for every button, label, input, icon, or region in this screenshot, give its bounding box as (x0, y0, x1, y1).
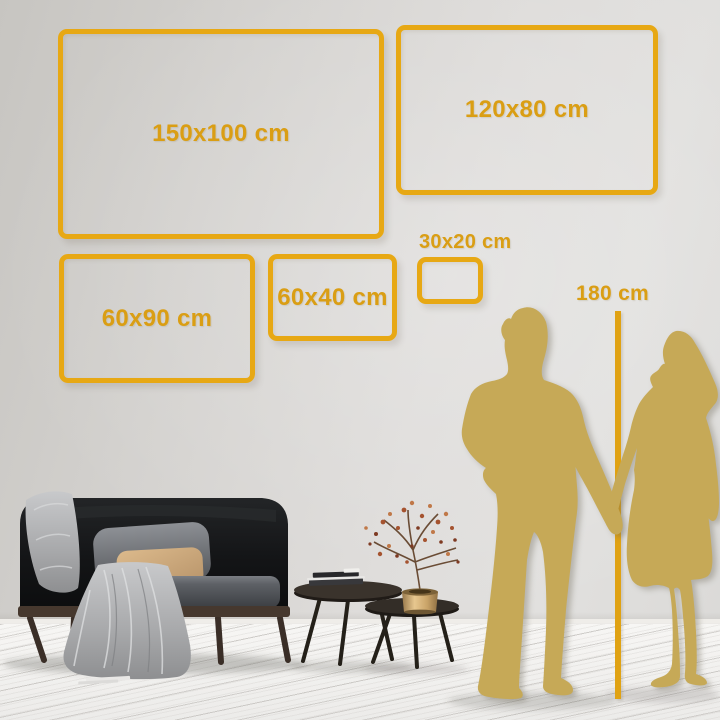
nesting-coffee-tables (294, 568, 459, 667)
size-frame-label-30x20: 30x20 cm (419, 231, 511, 254)
size-frame-label-60x90: 60x90 cm (102, 305, 213, 333)
size-frame-label-150x100: 150x100 cm (152, 120, 290, 148)
size-frame-120x80: 120x80 cm (396, 25, 658, 195)
size-frame-60x90: 60x90 cm (59, 254, 255, 383)
man-silhouette (462, 307, 623, 699)
sofa (18, 491, 290, 684)
size-frame-60x40: 60x40 cm (268, 254, 397, 341)
size-frame-label-60x40: 60x40 cm (277, 284, 388, 312)
size-frame-label-120x80: 120x80 cm (465, 96, 589, 124)
size-frame-150x100: 150x100 cm (58, 29, 384, 239)
brass-vase (402, 588, 438, 614)
size-guide-image: 150x100 cm120x80 cm60x90 cm60x40 cm30x20… (0, 0, 720, 720)
woman-silhouette (606, 331, 719, 688)
couple-silhouettes (440, 280, 720, 720)
books (307, 568, 366, 586)
